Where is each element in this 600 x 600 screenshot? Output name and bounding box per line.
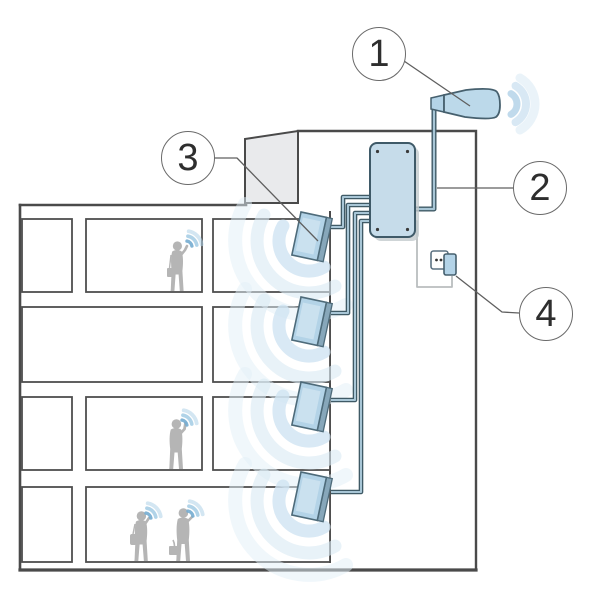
callout-4: 4 (519, 287, 573, 341)
callout-1: 1 (352, 27, 406, 81)
callout-line-4 (456, 276, 519, 313)
room (22, 487, 72, 562)
power-outlet (431, 251, 456, 275)
screw-icon (376, 228, 379, 231)
callout-3: 3 (161, 131, 215, 185)
screw-icon (376, 150, 379, 153)
room (22, 219, 72, 292)
callout-2-label: 2 (529, 169, 550, 207)
room (22, 307, 202, 382)
building-diagram (0, 0, 600, 600)
callout-3-label: 3 (177, 139, 198, 177)
callout-2: 2 (513, 161, 567, 215)
callout-1-label: 1 (368, 35, 389, 73)
signal-waves (511, 78, 535, 130)
room (86, 219, 202, 292)
screw-icon (406, 228, 409, 231)
screw-icon (406, 150, 409, 153)
rooftop-structure (245, 131, 298, 203)
room (86, 397, 202, 470)
power-plug (444, 254, 456, 275)
callout-4-label: 4 (535, 295, 556, 333)
diagram-canvas: 1 2 3 4 (0, 0, 600, 600)
signal-booster (370, 143, 419, 241)
room (22, 397, 72, 470)
